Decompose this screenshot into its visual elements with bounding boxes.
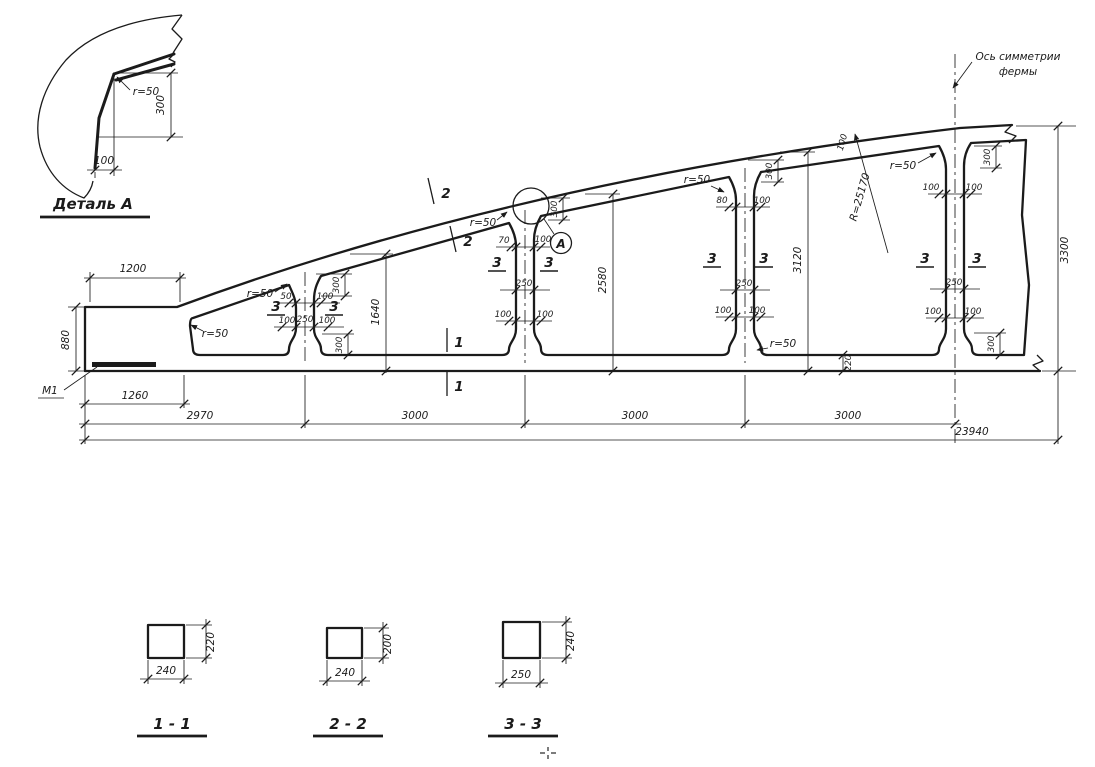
section-mark-3-label: 3	[759, 251, 768, 267]
radius-label: R=25170	[848, 171, 873, 222]
dim-300: 300	[550, 200, 560, 217]
r50-label: r=50	[890, 160, 917, 172]
axis-label-line1: Ось симметрии	[976, 51, 1061, 63]
detail-a-break-line	[172, 15, 182, 53]
dim-1260: 1260	[122, 390, 149, 402]
section-mark-3-label: 3	[972, 251, 981, 267]
r50-label: r=50	[247, 288, 274, 300]
section-mark-2-label: 2	[441, 186, 450, 202]
dim-100: 100	[319, 316, 336, 326]
section-3-3-width: 250	[511, 669, 531, 681]
dim-3300: 3300	[1059, 236, 1071, 263]
detail-indicator-circle	[513, 188, 549, 224]
dim-50: 50	[280, 292, 292, 302]
dim-100: 100	[965, 307, 982, 317]
dim-300: 300	[765, 162, 775, 179]
opening-2	[314, 223, 516, 355]
section-2-2-height: 200	[382, 634, 394, 654]
section-2-2-label: 2 - 2	[329, 715, 367, 733]
section-mark-3-label: 3	[329, 299, 338, 315]
section-mark-3-label: 3	[544, 255, 553, 271]
dim-1200: 1200	[120, 263, 147, 275]
section-3-3-height: 240	[565, 631, 577, 651]
detail-a-view: 300 r=50 100 Деталь А	[38, 15, 183, 217]
dim-300: 300	[332, 276, 342, 293]
dim-300: 300	[987, 335, 997, 352]
post-1-dims: r=50 r=50 50 100 300 3 3 100 250 100	[191, 270, 354, 359]
support-bearing-plate	[92, 362, 156, 367]
section-mark-2a: 2	[428, 178, 451, 204]
dim-880: 880	[60, 330, 72, 350]
detail-ref-letter: А	[555, 237, 565, 251]
dim-23940: 23940	[955, 426, 989, 438]
dim-2970: 2970	[187, 410, 214, 422]
section-mark-3-label: 3	[271, 299, 280, 315]
chord-offset-100-label: 100	[836, 133, 850, 152]
r50-label: r=50	[202, 328, 229, 340]
detail-a-dim-100: 100	[94, 155, 114, 167]
section-mark-1a: 1	[447, 328, 464, 352]
dim-300: 300	[983, 148, 993, 165]
opening-3	[534, 177, 736, 355]
axis-label-leader	[953, 62, 972, 88]
dim-100: 100	[925, 307, 942, 317]
section-mark-2b: 2	[450, 226, 473, 252]
overall-dims: 1200 880 М1 1640 2580 3120	[38, 122, 1076, 444]
opening-5-partial	[964, 140, 1029, 355]
dim-100: 100	[715, 306, 732, 316]
section-mark-3-label: 3	[920, 251, 929, 267]
truss-drawing-canvas: 300 r=50 100 Деталь А Ось симметрии ферм…	[0, 0, 1095, 767]
bottom-chord-break-line	[1033, 355, 1043, 371]
dim-2580: 2580	[597, 266, 609, 293]
section-mark-3-label: 3	[707, 251, 716, 267]
dim-100: 100	[754, 196, 771, 206]
dim-100: 100	[749, 306, 766, 316]
detail-ref-leader	[544, 219, 554, 234]
detail-a-dim-r50: r=50	[133, 86, 160, 98]
section-3-3-view: 240 250 3 - 3	[488, 616, 577, 736]
section-mark-1-label: 1	[454, 335, 463, 351]
dim-250: 250	[736, 279, 753, 289]
dim-3000: 3000	[402, 410, 429, 422]
section-1-1-width: 240	[156, 665, 176, 677]
dim-100: 100	[495, 310, 512, 320]
dim-250: 250	[946, 278, 963, 288]
section-2-2-view: 200 240 2 - 2	[313, 622, 394, 736]
dim-80: 80	[716, 196, 728, 206]
section-1-1-view: 220 240 1 - 1	[137, 619, 217, 736]
axis-label-line2: фермы	[999, 66, 1037, 78]
dim-3120: 3120	[792, 246, 804, 273]
dim-100: 100	[923, 183, 940, 193]
section-mark-1-label: 1	[454, 379, 463, 395]
section-3-3-label: 3 - 3	[504, 715, 542, 733]
opening-4	[754, 146, 946, 355]
section-mark-2-label: 2	[463, 234, 472, 250]
dim-100: 100	[537, 310, 554, 320]
truss-elevation-view: Ось симметрии фермы R=25170 100 2 2 1 1 …	[38, 51, 1076, 446]
detail-a-edge-line	[95, 74, 114, 168]
section-2-2-width: 240	[335, 667, 355, 679]
r50-label: r=50	[770, 338, 797, 350]
section-mark-1b: 1	[447, 372, 464, 396]
post-2-dims: А r=50 70 100 300 3 3 250 100 100	[470, 188, 572, 325]
section-2-2-square	[327, 628, 362, 658]
dim-220: 220	[844, 354, 854, 371]
dim-100: 100	[279, 316, 296, 326]
post-3-dims: r=50 80 100 300 3 3 250 100 100 r=50	[684, 156, 797, 350]
section-3-3-square	[503, 622, 540, 658]
section-1-1-label: 1 - 1	[153, 715, 191, 733]
r50-label: r=50	[684, 174, 711, 186]
dim-3000: 3000	[622, 410, 649, 422]
dim-100: 100	[966, 183, 983, 193]
dim-70: 70	[498, 236, 510, 246]
section-1-1-height: 220	[205, 632, 217, 652]
detail-a-title: Деталь А	[52, 195, 133, 213]
dim-1640: 1640	[370, 298, 382, 325]
dim-3000: 3000	[835, 410, 862, 422]
cursor-crosshair	[540, 747, 556, 759]
dim-300: 300	[335, 336, 345, 353]
section-mark-3-label: 3	[492, 255, 501, 271]
dim-250: 250	[516, 279, 533, 289]
support-mark-label: М1	[42, 385, 58, 397]
dim-100: 100	[535, 235, 552, 245]
drawing-sheet: 300 r=50 100 Деталь А Ось симметрии ферм…	[0, 0, 1095, 767]
r50-label: r=50	[470, 217, 497, 229]
dim-250: 250	[297, 315, 314, 325]
section-1-1-square	[148, 625, 184, 658]
